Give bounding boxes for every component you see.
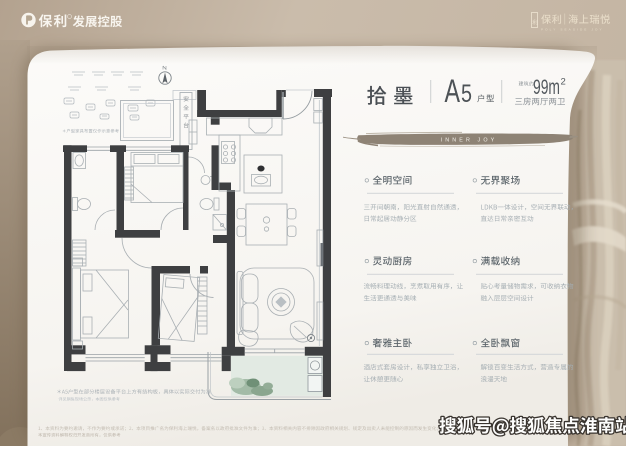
svg-text:INNER JOY: INNER JOY: [441, 137, 498, 143]
svg-text:99m: 99m: [533, 76, 560, 99]
svg-text:2: 2: [561, 77, 566, 88]
svg-text:5: 5: [461, 80, 472, 108]
svg-text:A: A: [445, 73, 461, 109]
svg-text:POLY SEASIDE JOY: POLY SEASIDE JOY: [541, 28, 604, 32]
